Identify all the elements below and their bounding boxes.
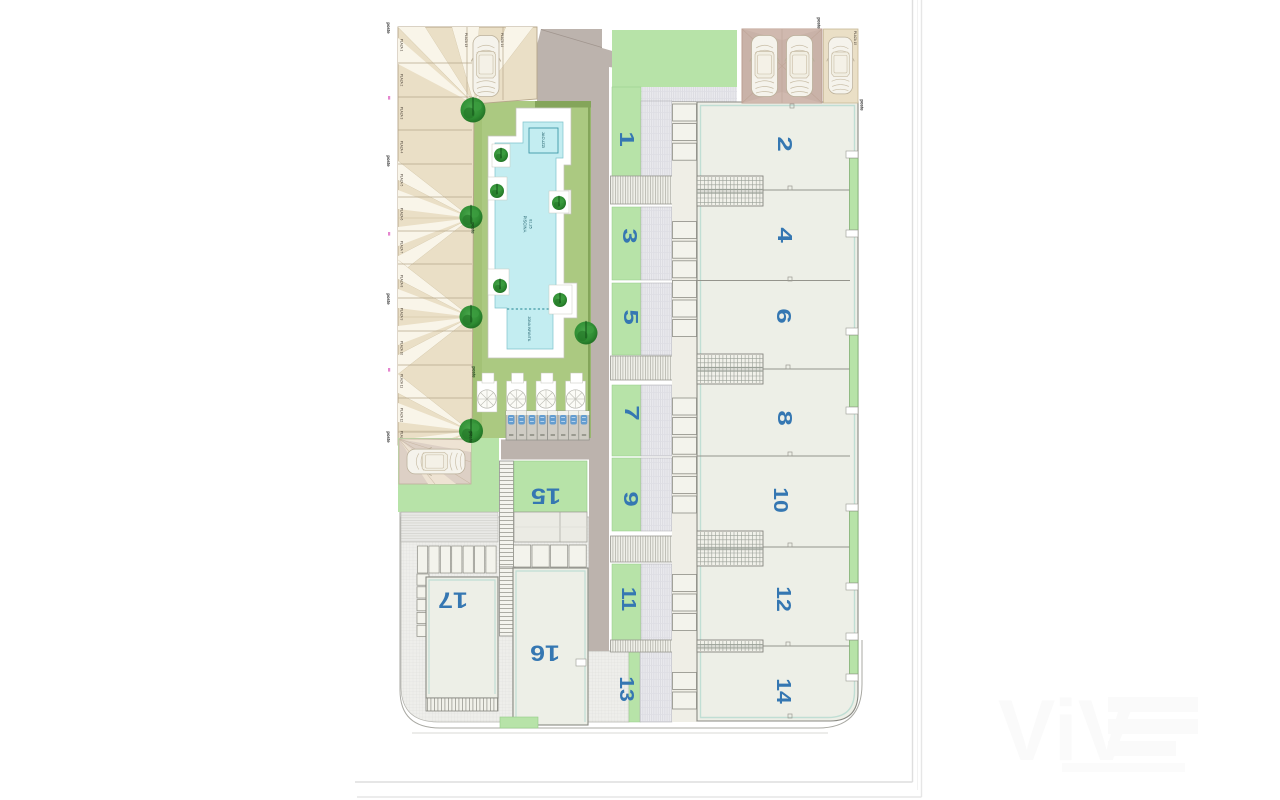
svg-text:PLAZA 3: PLAZA 3 [400,107,404,120]
svg-text:ZONA INFANTIL: ZONA INFANTIL [527,316,531,341]
svg-text:poste: poste [471,222,476,234]
svg-text:poste: poste [817,17,822,29]
svg-text:2: 2 [773,136,795,151]
svg-text:16: 16 [530,640,560,664]
svg-text:15: 15 [531,483,561,507]
svg-text:PLAZA 9: PLAZA 9 [400,308,404,321]
svg-text:8: 8 [773,410,795,425]
svg-text:1: 1 [615,131,637,146]
svg-text:6: 6 [772,308,794,323]
svg-text:poste: poste [386,431,391,443]
svg-text:81,25: 81,25 [529,219,533,229]
svg-text:PLAZA 2: PLAZA 2 [400,74,404,87]
svg-text:PLAZA 13: PLAZA 13 [464,33,468,48]
svg-text:4: 4 [773,227,795,243]
svg-text:7: 7 [620,405,642,420]
svg-text:PLAZA 5: PLAZA 5 [400,174,404,187]
svg-text:12: 12 [772,586,795,612]
svg-text:13: 13 [615,676,638,702]
svg-text:JACUZZI: JACUZZI [541,132,546,148]
svg-text:PLAZA 10: PLAZA 10 [400,341,404,356]
svg-text:9: 9 [619,491,641,506]
svg-text:PLAZA 12: PLAZA 12 [400,408,404,423]
svg-text:5: 5 [619,309,641,324]
svg-text:PLAZA 7: PLAZA 7 [400,241,404,254]
svg-text:poste: poste [386,22,391,34]
svg-text:3: 3 [618,228,640,243]
svg-text:poste: poste [386,293,391,305]
svg-text:poste: poste [386,155,391,167]
svg-text:14: 14 [772,678,795,704]
svg-text:17: 17 [438,587,468,611]
svg-text:PLAZA 1: PLAZA 1 [400,39,404,52]
svg-text:11: 11 [617,587,640,611]
svg-text:PLAZA 6: PLAZA 6 [400,208,404,221]
svg-text:PISCINA: PISCINA [523,216,528,233]
svg-text:PLAZA 14: PLAZA 14 [500,33,504,48]
svg-text:PLAZA 4: PLAZA 4 [400,141,404,154]
svg-text:poste: poste [469,431,474,443]
svg-text:PLAZA 11: PLAZA 11 [400,374,404,388]
svg-text:PLAZA 8: PLAZA 8 [400,275,404,288]
svg-text:10: 10 [769,487,792,513]
svg-text:poste: poste [860,99,865,111]
svg-text:poste: poste [472,366,477,378]
svg-text:PLAZA 15: PLAZA 15 [853,31,857,46]
